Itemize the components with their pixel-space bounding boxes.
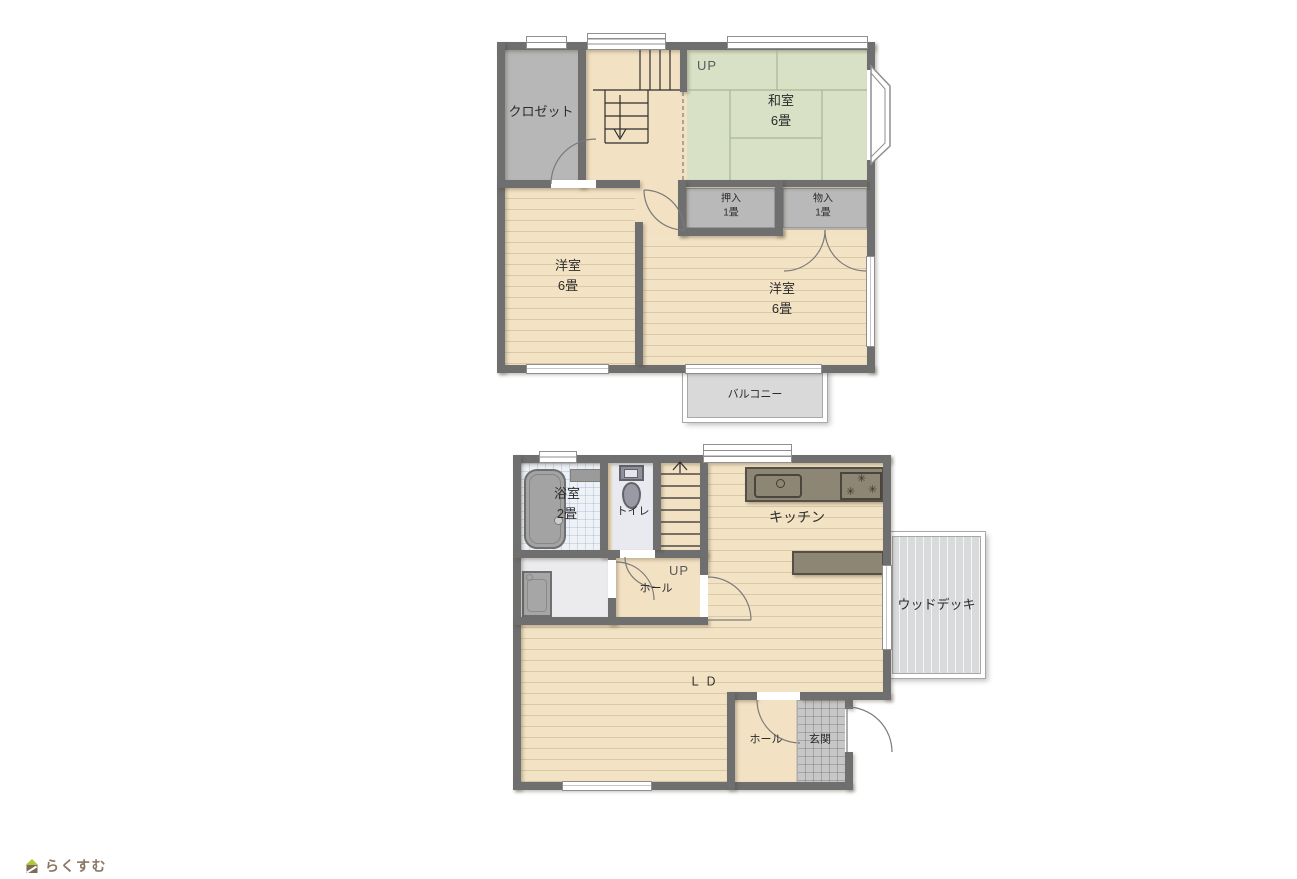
toilet-label: トイレ — [617, 503, 650, 520]
wall — [653, 463, 661, 550]
bathroom-label: 浴室 2畳 — [554, 484, 580, 524]
deck-sliding-door — [882, 565, 892, 650]
balcony-label: バルコニー — [728, 386, 783, 403]
wall — [845, 700, 853, 709]
wall — [635, 222, 643, 365]
wall — [497, 42, 505, 373]
wall — [678, 228, 783, 236]
bath-counter — [570, 469, 602, 482]
living-dining-label: ＬＤ — [689, 673, 721, 692]
kitchen-counter: ✳ ✳ ✳ — [745, 467, 884, 502]
kitchen-island-counter — [792, 551, 884, 575]
balcony-sliding-door — [685, 364, 822, 374]
room-yoshitsu-right — [643, 236, 867, 365]
yoshitsu-left-label: 洋室 6畳 — [555, 256, 581, 296]
wall — [497, 180, 640, 188]
entrance-porch — [845, 700, 913, 792]
wood-deck-label: ウッドデッキ — [897, 595, 975, 615]
wood-deck: ウッドデッキ — [888, 532, 985, 678]
wall — [600, 463, 608, 558]
wall — [845, 752, 853, 790]
hall-center-label: ホール — [640, 580, 673, 597]
oshiire-label: 押入 1畳 — [721, 193, 741, 220]
wall — [727, 692, 735, 790]
kitchen-label: キッチン — [769, 507, 825, 529]
window — [727, 36, 868, 49]
kitchen-bay-window — [703, 444, 792, 463]
site-logo[interactable]: らくすむ — [24, 856, 107, 876]
page: { "logo": { "text": "らくすむ", "icon": "hou… — [0, 0, 1297, 879]
kitchen-sink — [754, 474, 802, 498]
wall — [800, 692, 891, 700]
toilet-tank-icon — [619, 465, 644, 481]
window — [562, 781, 652, 791]
floorplan-1f: ウッドデッキ ✳ ✳ ✳ — [513, 455, 891, 790]
window — [587, 33, 666, 50]
washing-machine — [522, 571, 552, 617]
window — [539, 451, 577, 463]
hall-entrance-label: ホール — [750, 731, 783, 748]
washer-knob — [526, 574, 533, 581]
washitsu-label: 和室 6畳 — [768, 91, 794, 131]
logo-text: らくすむ — [45, 856, 107, 876]
floorplan-2f: バルコニー — [497, 42, 875, 373]
toilet-tank-lid — [624, 469, 638, 478]
sink-faucet — [776, 479, 785, 488]
stove-burner-icon: ✳ — [846, 487, 855, 498]
wall — [513, 617, 708, 625]
stove-burner-icon: ✳ — [857, 474, 866, 485]
closet-label: クロゼット — [508, 102, 573, 122]
window — [526, 36, 567, 49]
wall — [700, 463, 708, 575]
entrance-label: 玄関 — [809, 731, 831, 748]
stairs-up-label: UP — [697, 56, 717, 76]
house-logo-icon — [24, 858, 40, 874]
wall — [578, 50, 586, 188]
stove-burner-icon: ✳ — [868, 485, 877, 496]
window — [526, 364, 609, 374]
window — [866, 256, 875, 347]
kitchen-stove: ✳ ✳ ✳ — [840, 472, 882, 500]
yoshitsu-right-label: 洋室 6畳 — [769, 279, 795, 319]
stairs-up-label: UP — [669, 561, 689, 581]
balcony: バルコニー — [683, 368, 827, 422]
wall — [680, 50, 687, 92]
monoire-label: 物入 1畳 — [813, 193, 833, 220]
wall — [513, 550, 708, 558]
washer-drum — [527, 579, 547, 612]
wall — [608, 558, 616, 625]
